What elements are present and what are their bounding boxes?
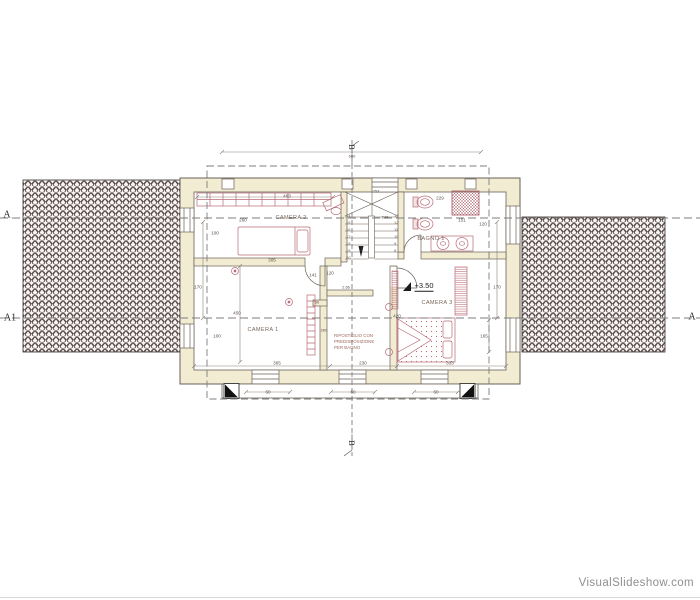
dim-overall-width: 600 (349, 154, 356, 159)
bottom-rule (0, 597, 700, 598)
dim-camera1-width: 365 (273, 361, 281, 366)
dim-wardrobe: 463 (283, 194, 291, 199)
room-label-camera1: CAMERA 1 (247, 327, 278, 333)
dim-ripostiglio-depth: 260 (321, 328, 328, 333)
stair-step-numbers-left: 14 15 16 17 18 19 20 (346, 212, 350, 261)
radiator-icon (392, 271, 398, 309)
dim-window-top-left: 100 (211, 231, 219, 236)
dim-hall-a: 141 (309, 273, 317, 278)
section-marker-b-bottom: B (347, 440, 357, 446)
floor-plan-page: CAMERA 2 BAGNO 1 CAMERA 1 CAMERA 3 RIPOS… (0, 0, 700, 600)
dim-wall-stub: 50 (315, 300, 319, 305)
stair-step-numbers-right: 13 12 11 10 9 8 (394, 212, 398, 254)
section-marker-a-right: A (688, 312, 695, 323)
wardrobe-icon (455, 267, 467, 315)
floor-plan-drawing (0, 0, 700, 600)
dim-offset-right: 170 (493, 285, 501, 290)
shower-icon (452, 191, 479, 215)
dim-window-right-a: 151 (458, 218, 466, 223)
section-marker-a-left: A (3, 210, 10, 221)
dim-window-b1: 60 (265, 390, 270, 395)
dim-window-b2: 60 (350, 390, 355, 395)
dim-camera3-width: 333 (446, 361, 454, 366)
dim-stair-top: 253 (373, 189, 380, 194)
level-annotation: +3.50 (415, 281, 434, 292)
dim-shower: 229 (436, 196, 444, 201)
pillow-icon (443, 341, 452, 358)
dim-offset-left: 170 (194, 285, 202, 290)
room-label-ripostiglio: RIPOSTIGLIO CON PREDISPOSIZIONE PER BAGN… (334, 333, 374, 351)
dim-corridor: 2.66 (342, 285, 350, 290)
section-marker-b-top: B (347, 144, 357, 150)
watermark-link[interactable]: VisualSlideshow.com (579, 577, 694, 589)
room-label-bagno: BAGNO 1 (417, 236, 444, 242)
dim-camera3-height: 420 (393, 314, 401, 319)
dim-hall-b: 120 (326, 271, 334, 276)
dim-window-bottom-left: 100 (213, 334, 221, 339)
dim-ripostiglio-width: 230 (359, 361, 367, 366)
dim-camera2-width: 260 (239, 218, 247, 223)
roof-hatch-right (522, 217, 665, 352)
dim-camera3-right: 165 (480, 334, 488, 339)
dim-window-right-b: 120 (479, 222, 487, 227)
roof-hatch-left (23, 180, 180, 352)
dim-stair-mid: 248 (382, 215, 389, 220)
section-marker-a1-left: A1 (4, 313, 16, 324)
dim-window-b3: 60 (433, 390, 438, 395)
room-label-camera2: CAMERA 2 (275, 215, 306, 221)
room-label-camera3: CAMERA 3 (421, 300, 452, 306)
dim-camera1-height: 450 (233, 311, 241, 316)
dim-camera2-bottom: 305 (268, 258, 276, 263)
pillow-icon (443, 321, 452, 338)
